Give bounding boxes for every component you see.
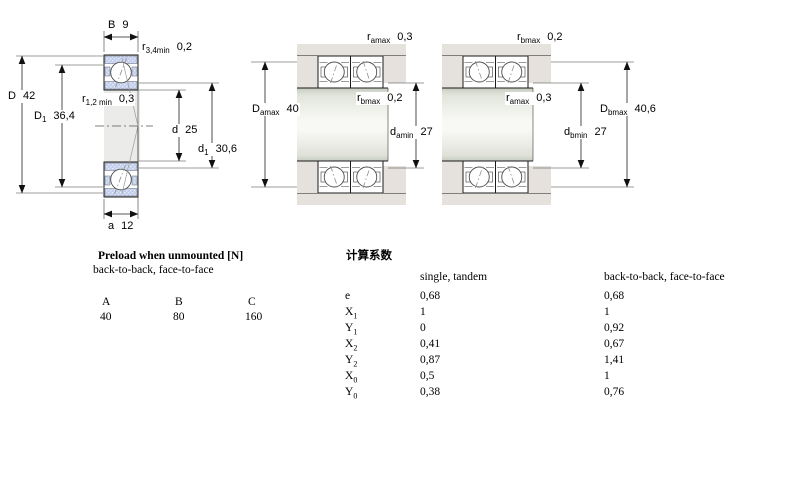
- dim-value: 9: [122, 19, 128, 31]
- preload-value-B: 80: [173, 311, 185, 324]
- dim-subscript: amax: [510, 97, 530, 106]
- factor-row-label: X2: [345, 338, 357, 351]
- dim-subscript: amax: [371, 36, 391, 45]
- dim-subscript: amin: [396, 131, 413, 140]
- middle-view-drawing: [251, 44, 424, 205]
- dim-value: 0,3: [119, 93, 134, 105]
- factor-value-back: 1: [604, 306, 610, 319]
- dim-subscript: 1: [204, 148, 208, 157]
- dim-label-rbmax-right: rbmax0,2: [516, 31, 564, 44]
- dim-label-D1: D136,4: [33, 110, 76, 123]
- factor-row-label: Y2: [345, 354, 357, 367]
- dim-value: 40,6: [635, 103, 656, 115]
- preload-value-C: 160: [245, 311, 262, 324]
- dim-value: 27: [594, 126, 606, 138]
- dim-subscript: 1,2 min: [86, 98, 112, 107]
- factors-col2-header: back-to-back, face-to-face: [604, 271, 725, 284]
- dim-subscript: 3,4min: [146, 46, 170, 55]
- dim-value: 0,3: [397, 31, 412, 43]
- bearing-datasheet: B9 r3,4min0,2 D42 D136,4 r1,2 min0,3 d25…: [0, 0, 800, 500]
- dim-symbol: a: [108, 220, 114, 232]
- factor-value-single: 0,87: [420, 354, 440, 367]
- dim-value: 36,4: [53, 110, 74, 122]
- dim-symbol: D: [252, 103, 260, 115]
- factors-title: 计算系数: [346, 250, 392, 263]
- dim-value: 0,3: [536, 92, 551, 104]
- dim-label-Damax: Damax40: [251, 103, 300, 116]
- factors-col1-header: single, tandem: [420, 271, 487, 284]
- dim-subscript: bmax: [361, 97, 381, 106]
- dim-label-damin: damin27: [389, 126, 434, 139]
- dim-value: 0,2: [547, 31, 562, 43]
- dim-value: 27: [420, 126, 432, 138]
- dim-label-ramax-mid: ramax0,3: [366, 31, 414, 44]
- factor-row-label: X0: [345, 370, 357, 383]
- factor-value-back: 0,67: [604, 338, 624, 351]
- dim-value: 40: [287, 103, 299, 115]
- dim-value: 30,6: [216, 143, 237, 155]
- preload-col-C: C: [248, 296, 256, 309]
- dim-value: 25: [185, 124, 197, 136]
- factor-value-back: 0,68: [604, 290, 624, 303]
- factor-row-label: e: [345, 290, 350, 303]
- factor-value-back: 0,76: [604, 386, 624, 399]
- dim-label-D: D42: [7, 90, 36, 103]
- factor-row-label: Y0: [345, 386, 357, 399]
- dim-value: 0,2: [387, 92, 402, 104]
- dim-label-a: a12: [107, 220, 134, 233]
- dim-symbol: B: [108, 19, 115, 31]
- preload-col-B: B: [175, 296, 183, 309]
- factor-value-single: 0,38: [420, 386, 440, 399]
- dim-subscript: amax: [260, 108, 280, 117]
- dim-label-d1: d130,6: [197, 143, 238, 156]
- dim-label-d: d25: [171, 124, 198, 137]
- dim-symbol: d: [172, 124, 178, 136]
- factor-row-label: Y1: [345, 322, 357, 335]
- factor-row-label: X1: [345, 306, 357, 319]
- dim-label-Dbmax: Dbmax40,6: [599, 103, 657, 116]
- dim-subscript: bmax: [521, 36, 541, 45]
- factor-value-single: 0,5: [420, 370, 434, 383]
- preload-subtitle: back-to-back, face-to-face: [93, 264, 214, 277]
- dim-symbol: D: [600, 103, 608, 115]
- dim-label-rbmax-mid: rbmax0,2: [356, 92, 404, 105]
- dim-subscript: bmax: [608, 108, 628, 117]
- dim-label-B: B9: [107, 19, 129, 32]
- dim-value: 0,2: [177, 41, 192, 53]
- right-view-drawing: [442, 44, 634, 205]
- factor-value-single: 0,41: [420, 338, 440, 351]
- factor-value-single: 0: [420, 322, 426, 335]
- dim-subscript: bmin: [570, 131, 587, 140]
- preload-col-A: A: [102, 296, 110, 309]
- dim-label-dbmin: dbmin27: [563, 126, 608, 139]
- dim-label-r34min: r3,4min0,2: [141, 41, 193, 54]
- dim-label-ramax-right: ramax0,3: [505, 92, 553, 105]
- preload-title: Preload when unmounted [N]: [98, 250, 243, 263]
- dim-value: 42: [23, 90, 35, 102]
- dim-symbol: D: [34, 110, 42, 122]
- dim-value: 12: [121, 220, 133, 232]
- preload-value-A: 40: [100, 311, 112, 324]
- factor-value-single: 0,68: [420, 290, 440, 303]
- factor-value-back: 1,41: [604, 354, 624, 367]
- dim-subscript: 1: [42, 115, 46, 124]
- dim-symbol: D: [8, 90, 16, 102]
- factor-value-single: 1: [420, 306, 426, 319]
- factor-value-back: 0,92: [604, 322, 624, 335]
- factor-value-back: 1: [604, 370, 610, 383]
- dim-label-r12min: r1,2 min0,3: [81, 93, 135, 106]
